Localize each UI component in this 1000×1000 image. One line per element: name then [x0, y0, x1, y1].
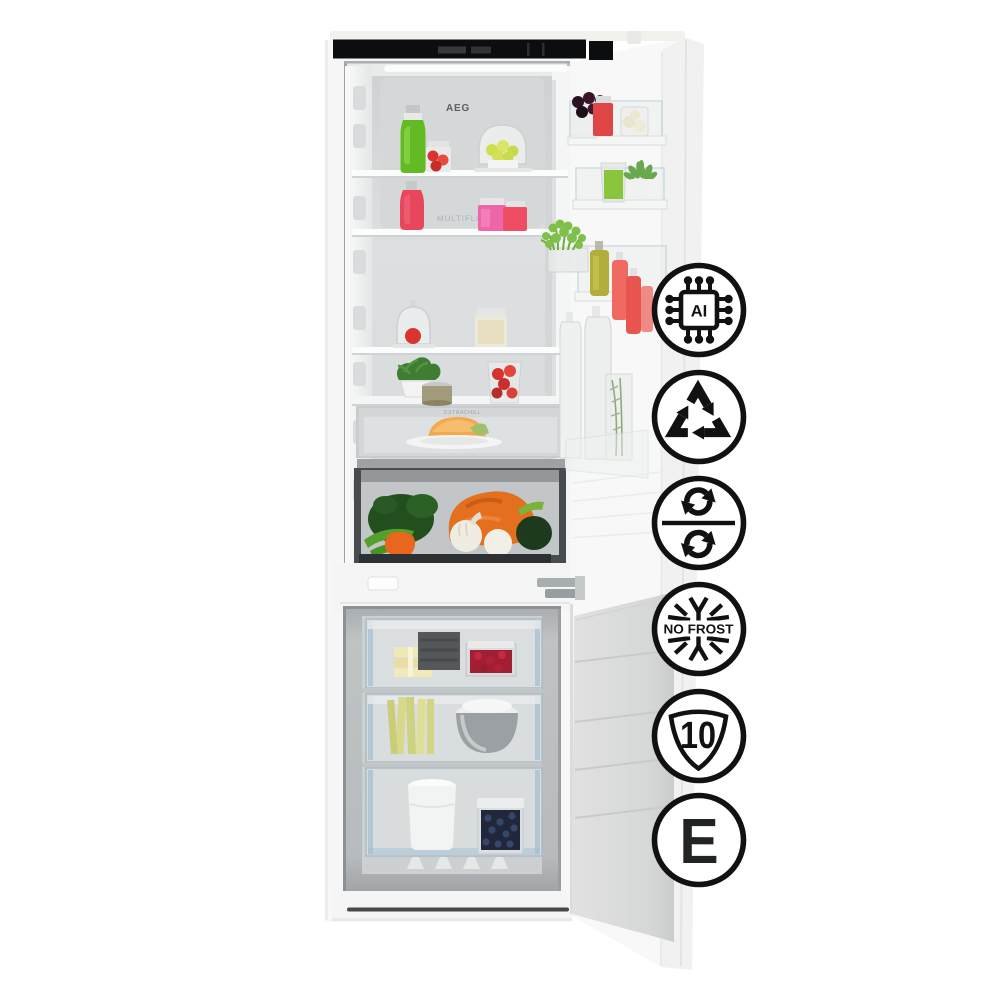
svg-text:10: 10: [680, 715, 716, 757]
svg-text:E: E: [679, 805, 718, 877]
svg-text:NO FROST: NO FROST: [663, 621, 733, 636]
svg-text:EXTRACHILL: EXTRACHILL: [444, 410, 481, 416]
svg-text:AEG: AEG: [446, 103, 470, 114]
svg-text:AI: AI: [691, 302, 708, 320]
